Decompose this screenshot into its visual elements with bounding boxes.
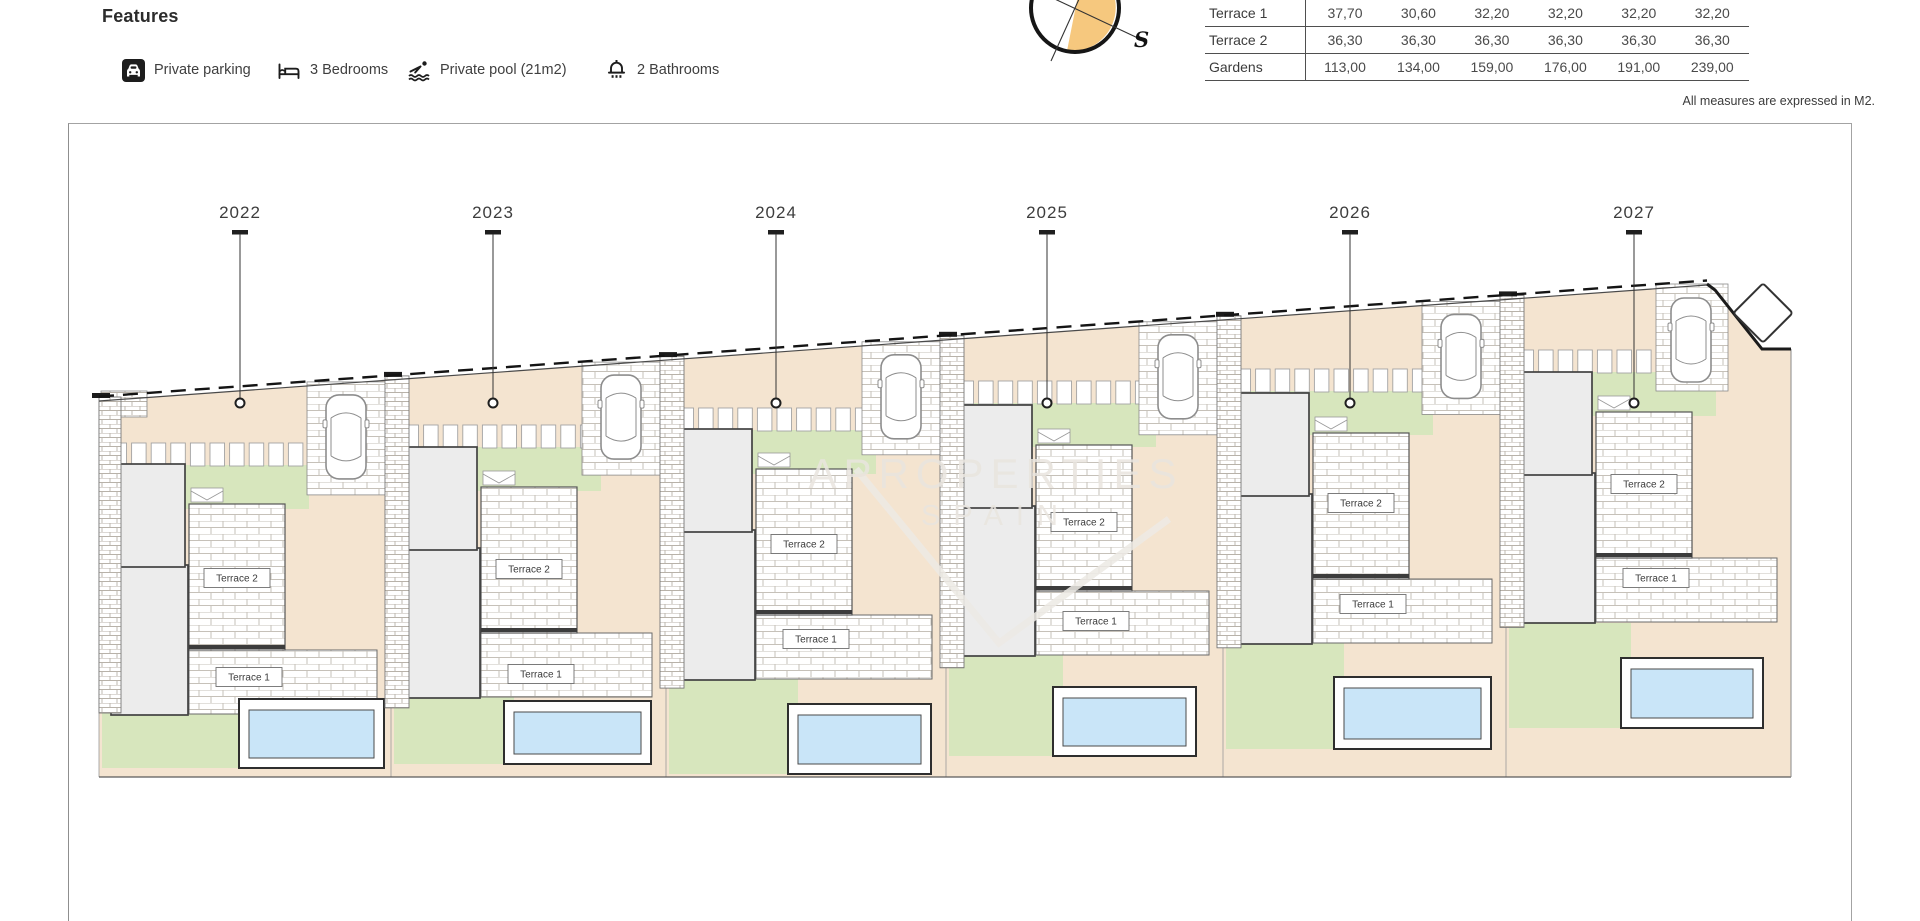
- plot-2026: Terrace 2Terrace 1: [1223, 299, 1506, 777]
- spec-row: Gardens113,00134,00159,00176,00191,00239…: [1205, 54, 1749, 81]
- spec-row: Terrace 236,3036,3036,3036,3036,3036,30: [1205, 27, 1749, 54]
- car: [1155, 335, 1201, 419]
- spec-value: 239,00: [1676, 59, 1749, 75]
- terrace-label: Terrace 2: [1611, 475, 1677, 494]
- svg-text:Terrace 1: Terrace 1: [1635, 574, 1677, 585]
- pool-icon: [407, 58, 431, 82]
- pool: [514, 712, 641, 754]
- plot-number: 2024: [755, 203, 797, 222]
- terrace1-area: [1596, 558, 1777, 622]
- measure-unit-note: All measures are expressed in M2.: [1683, 94, 1875, 108]
- terrace-label: Terrace 1: [1623, 569, 1689, 588]
- villa-building: [403, 548, 480, 698]
- plot-2022: Terrace 2Terrace 1: [99, 380, 391, 777]
- svg-text:Terrace 2: Terrace 2: [508, 565, 550, 576]
- compass-south-label: S: [1134, 27, 1149, 52]
- plot-2027: Terrace 2Terrace 1: [1506, 284, 1791, 777]
- plot-2023: Terrace 2Terrace 1: [391, 360, 666, 777]
- svg-text:Terrace 1: Terrace 1: [1075, 617, 1117, 628]
- terrace-label: Terrace 2: [496, 560, 562, 579]
- pool: [1631, 669, 1753, 718]
- site-plan: Terrace 2Terrace 1Terrace 2Terrace 1Terr…: [69, 124, 1851, 921]
- spec-value: 36,30: [1382, 32, 1455, 48]
- spec-value: 134,00: [1382, 59, 1455, 75]
- wall: [385, 376, 409, 708]
- terrace-label: Terrace 1: [508, 665, 574, 684]
- pool: [1063, 698, 1186, 746]
- villa-building: [1235, 494, 1312, 644]
- measurements-table: Terrace 137,7030,6032,2032,2032,2032,20T…: [1205, 0, 1749, 81]
- spec-value: 32,20: [1676, 5, 1749, 21]
- table-divider-line: [1305, 0, 1306, 80]
- site-plan-frame: Terrace 2Terrace 1Terrace 2Terrace 1Terr…: [68, 123, 1852, 921]
- garden-area: [394, 695, 514, 764]
- svg-text:Terrace 1: Terrace 1: [795, 635, 837, 646]
- compass-rose: S: [1018, 0, 1178, 74]
- spec-value: 32,20: [1455, 5, 1528, 21]
- villa-building: [678, 530, 755, 680]
- pool: [1344, 688, 1481, 739]
- spec-value: 176,00: [1529, 59, 1602, 75]
- terrace-label: Terrace 2: [204, 569, 270, 588]
- spec-value: 36,30: [1676, 32, 1749, 48]
- plot-number: 2025: [1026, 203, 1068, 222]
- svg-text:Terrace 2: Terrace 2: [216, 574, 258, 585]
- pool: [798, 715, 921, 764]
- wall: [1500, 295, 1524, 627]
- spec-value: 30,60: [1382, 5, 1455, 21]
- car: [323, 395, 369, 479]
- plot-number: 2026: [1329, 203, 1371, 222]
- feature-bedrooms: 3 Bedrooms: [277, 56, 388, 84]
- spec-value: 36,30: [1455, 32, 1528, 48]
- feature-bathrooms: 2 Bathrooms: [605, 56, 719, 84]
- svg-text:Terrace 1: Terrace 1: [520, 670, 562, 681]
- feature-label: Private parking: [154, 62, 251, 78]
- plot-leader: 2022: [219, 203, 261, 408]
- spec-value: 37,70: [1308, 5, 1381, 21]
- wall: [660, 356, 684, 688]
- garden-area: [949, 641, 1063, 756]
- villa-building: [1518, 473, 1595, 623]
- spec-value: 191,00: [1602, 59, 1675, 75]
- car: [1438, 314, 1484, 398]
- feature-label: 2 Bathrooms: [637, 62, 719, 78]
- spec-value: 113,00: [1308, 59, 1381, 75]
- plot-number: 2027: [1613, 203, 1655, 222]
- car: [1668, 298, 1714, 382]
- bed-icon: [277, 59, 301, 82]
- feature-pool: Private pool (21m2): [407, 56, 567, 84]
- spec-value: 36,30: [1529, 32, 1602, 48]
- garden-area: [669, 678, 798, 774]
- svg-text:SPAIN: SPAIN: [921, 500, 1071, 532]
- garden-area: [1509, 623, 1631, 728]
- spec-row-label: Terrace 1: [1205, 5, 1308, 21]
- plot-2024: Terrace 2Terrace 1: [666, 340, 946, 777]
- terrace-label: Terrace 1: [216, 668, 282, 687]
- plot-number: 2023: [472, 203, 514, 222]
- spec-row-label: Gardens: [1205, 59, 1308, 75]
- terrace-label: Terrace 1: [783, 630, 849, 649]
- garden-area: [1226, 639, 1344, 749]
- feature-private-parking: Private parking: [122, 56, 251, 84]
- svg-text:APROPERTIES: APROPERTIES: [809, 450, 1184, 497]
- terrace-label: Terrace 2: [1328, 494, 1394, 513]
- spec-value: 36,30: [1602, 32, 1675, 48]
- spec-row: Terrace 137,7030,6032,2032,2032,2032,20: [1205, 0, 1749, 27]
- spec-value: 32,20: [1529, 5, 1602, 21]
- spec-value: 36,30: [1308, 32, 1381, 48]
- terrace-label: Terrace 2: [771, 535, 837, 554]
- wall: [1217, 316, 1241, 648]
- svg-text:Terrace 1: Terrace 1: [1352, 600, 1394, 611]
- pool: [249, 710, 374, 758]
- spec-value: 159,00: [1455, 59, 1528, 75]
- feature-label: Private pool (21m2): [440, 62, 567, 78]
- features-title: Features: [102, 6, 179, 27]
- bathroom-icon: [605, 59, 628, 82]
- car: [878, 355, 924, 439]
- wall: [99, 397, 121, 713]
- feature-label: 3 Bedrooms: [310, 62, 388, 78]
- terrace-label: Terrace 1: [1340, 595, 1406, 614]
- villa-building: [111, 565, 188, 715]
- plot-number: 2022: [219, 203, 261, 222]
- svg-text:Terrace 2: Terrace 2: [783, 540, 825, 551]
- spec-value: 32,20: [1602, 5, 1675, 21]
- svg-text:Terrace 1: Terrace 1: [228, 673, 270, 684]
- svg-text:Terrace 2: Terrace 2: [1340, 499, 1382, 510]
- svg-text:Terrace 2: Terrace 2: [1623, 480, 1665, 491]
- car: [598, 375, 644, 459]
- spec-row-label: Terrace 2: [1205, 32, 1308, 48]
- terrace-label: Terrace 1: [1063, 612, 1129, 631]
- plot-2025: Terrace 2Terrace 1: [946, 320, 1223, 777]
- parking-icon: [122, 59, 145, 82]
